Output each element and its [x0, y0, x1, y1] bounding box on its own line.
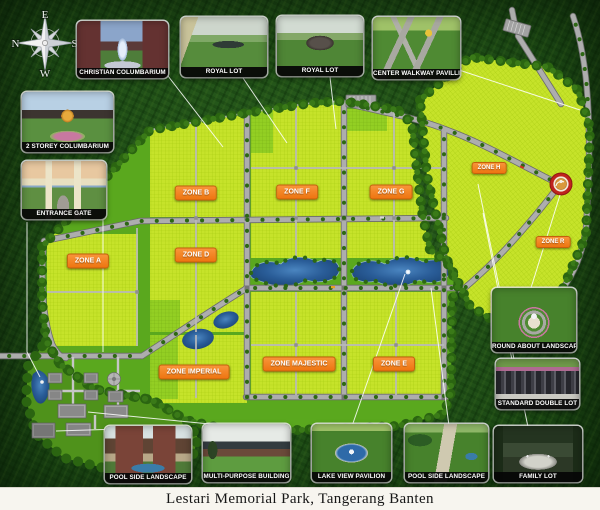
card-label: POOL SIDE LANDSCAPE [105, 473, 191, 483]
card-entrance-gate: ENTRANCE GATE [22, 161, 106, 219]
zone-badge-e: ZONE E [373, 357, 415, 372]
card-label: 2 STOREY COLUMBARIUM [22, 142, 113, 152]
compass-rose: E S W N [10, 8, 80, 78]
zone-badge-f: ZONE F [276, 185, 318, 200]
parking-lot-wing [503, 19, 531, 38]
statue-icon [40, 380, 44, 384]
park-title: Lestari Memorial Park, Tangerang Banten [166, 491, 434, 507]
compass-letter-top: E [42, 9, 49, 21]
compass-letter-bottom: W [40, 68, 51, 78]
zone-badge-majestic: ZONE MAJESTIC [263, 357, 336, 372]
card-two-storey-columbarium: 2 STOREY COLUMBARIUM [22, 92, 113, 152]
card-label: CHRISTIAN COLUMBARIUM [77, 68, 168, 78]
zone-badge-a: ZONE A [67, 254, 109, 269]
roundabout-icon [550, 173, 572, 195]
card-label: ROYAL LOT [181, 67, 267, 77]
card-royal-lot-1: ROYAL LOT [181, 17, 267, 77]
card-multi-purpose-building: MULTI-PURPOSE BUILDING [203, 424, 290, 482]
card-round-about-landscaping: ROUND ABOUT LANDSCAPING [492, 288, 576, 352]
card-pool-side-landscape-right: POOL SIDE LANDSCAPE [405, 424, 488, 482]
zone-badge-imperial: ZONE IMPERIAL [159, 365, 230, 380]
card-family-lot: FAMILY LOT [494, 426, 582, 482]
zone-badge-g: ZONE G [370, 185, 413, 200]
card-label: CENTER WALKWAY PAVILLION [373, 69, 460, 79]
screenshot-root: E S W N ZONE A ZONE B ZONE D ZONE F ZONE… [0, 0, 600, 510]
card-label: POOL SIDE LANDSCAPE [405, 472, 488, 482]
zone-badge-d: ZONE D [175, 248, 217, 263]
title-bar: Lestari Memorial Park, Tangerang Banten [0, 487, 600, 510]
card-pool-side-landscape-left: POOL SIDE LANDSCAPE [105, 426, 191, 483]
zone-badge-r: ZONE R [536, 236, 571, 248]
card-label: MULTI-PURPOSE BUILDING [203, 472, 290, 482]
card-lake-view-pavilion: LAKE VIEW PAVILION [312, 424, 391, 482]
card-label: ROYAL LOT [277, 66, 363, 76]
card-label: FAMILY LOT [494, 472, 582, 482]
card-center-walkway-pavilion: CENTER WALKWAY PAVILLION [373, 17, 460, 79]
zone-badge-b: ZONE B [175, 186, 217, 201]
card-label: ENTRANCE GATE [22, 209, 106, 219]
card-royal-lot-2: ROYAL LOT [277, 16, 363, 76]
card-label: ROUND ABOUT LANDSCAPING [492, 342, 576, 352]
card-label: LAKE VIEW PAVILION [312, 472, 391, 482]
zone-badge-h: ZONE H [472, 162, 507, 174]
card-standard-double-lot: STANDARD DOUBLE LOT [496, 359, 579, 409]
compass-letter-left: N [12, 38, 20, 50]
card-label: STANDARD DOUBLE LOT [496, 399, 579, 409]
card-christian-columbarium: CHRISTIAN COLUMBARIUM [77, 21, 168, 78]
